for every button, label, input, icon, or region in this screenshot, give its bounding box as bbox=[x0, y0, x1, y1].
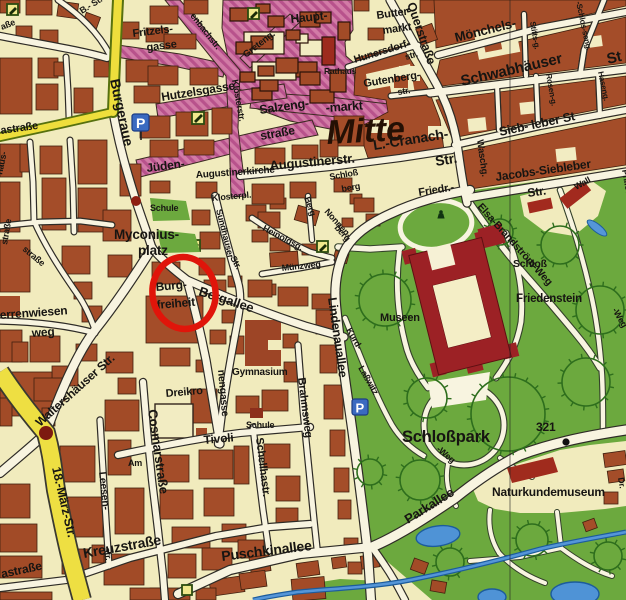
svg-text:321: 321 bbox=[536, 420, 556, 434]
svg-text:Schule: Schule bbox=[150, 203, 179, 213]
svg-text:weg: weg bbox=[30, 324, 55, 340]
svg-text:Schloßpark: Schloßpark bbox=[402, 428, 491, 446]
svg-text:str.: str. bbox=[397, 85, 411, 97]
svg-text:platz: platz bbox=[138, 243, 168, 258]
svg-text:Gymnasium: Gymnasium bbox=[232, 367, 288, 378]
svg-text:Rathaus: Rathaus bbox=[324, 66, 357, 76]
svg-text:P: P bbox=[356, 401, 365, 416]
svg-text:Friedenstein: Friedenstein bbox=[516, 293, 582, 305]
svg-text:-markt: -markt bbox=[325, 98, 364, 115]
svg-text:Naturkundemuseum: Naturkundemuseum bbox=[492, 485, 605, 499]
svg-text:Str.: Str. bbox=[434, 150, 458, 169]
svg-text:Myconius-: Myconius- bbox=[114, 227, 179, 242]
svg-text:Museen: Museen bbox=[380, 312, 420, 324]
svg-text:Schloß: Schloß bbox=[513, 258, 548, 270]
svg-text:Schule: Schule bbox=[246, 420, 275, 430]
svg-text:P: P bbox=[136, 115, 145, 131]
svg-text:Str.: Str. bbox=[526, 184, 546, 200]
svg-text:Am: Am bbox=[128, 458, 142, 468]
svg-text:str.: str. bbox=[102, 547, 114, 561]
svg-text:Burg-: Burg- bbox=[155, 277, 187, 294]
svg-text:Tivoli: Tivoli bbox=[203, 430, 234, 447]
